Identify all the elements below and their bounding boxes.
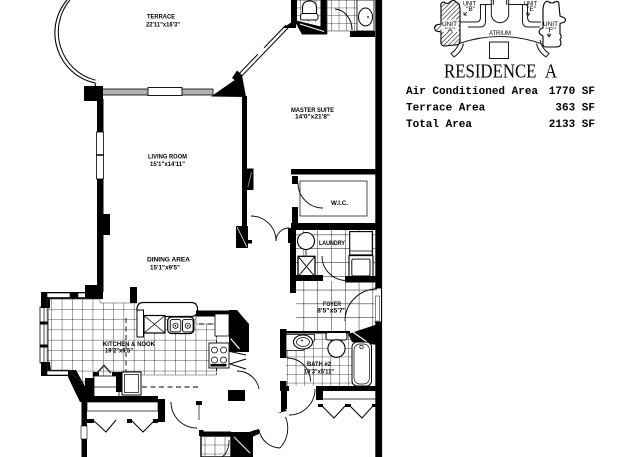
- svg-text:19'2"x9'5": 19'2"x9'5": [105, 348, 133, 355]
- svg-text:"B": "B": [466, 7, 475, 13]
- svg-text:W.I.C.: W.I.C.: [331, 200, 348, 207]
- svg-text:10'3"x5'11": 10'3"x5'11": [304, 369, 334, 376]
- svg-text:2133 SF: 2133 SF: [549, 119, 595, 131]
- svg-text:Air Conditioned Area: Air Conditioned Area: [406, 86, 538, 98]
- svg-text:Total Area: Total Area: [406, 119, 472, 131]
- svg-text:LIVING ROOM: LIVING ROOM: [148, 154, 187, 161]
- svg-text:TERRACE: TERRACE: [147, 14, 175, 21]
- svg-text:8'5"x5'7": 8'5"x5'7": [317, 308, 346, 315]
- svg-text:22'11"x16'3": 22'11"x16'3": [146, 22, 180, 29]
- svg-text:BATH #2: BATH #2: [307, 361, 331, 368]
- svg-text:DINING AREA: DINING AREA: [147, 257, 190, 264]
- svg-text:363 SF: 363 SF: [555, 102, 595, 114]
- svg-text:15'1"x9'5": 15'1"x9'5": [150, 265, 180, 272]
- svg-text:"A": "A": [445, 28, 455, 34]
- svg-text:Terrace Area: Terrace Area: [406, 102, 486, 114]
- svg-text:1770 SF: 1770 SF: [549, 86, 595, 98]
- svg-text:15'1"x14'11": 15'1"x14'11": [150, 161, 185, 168]
- svg-text:ATRIUM: ATRIUM: [489, 30, 511, 37]
- svg-text:RESIDENCE A: RESIDENCE A: [444, 62, 557, 83]
- svg-text:14'0"x21'8": 14'0"x21'8": [295, 114, 330, 121]
- svg-text:LAUNDRY: LAUNDRY: [319, 240, 345, 247]
- svg-text:"F": "F": [546, 28, 556, 34]
